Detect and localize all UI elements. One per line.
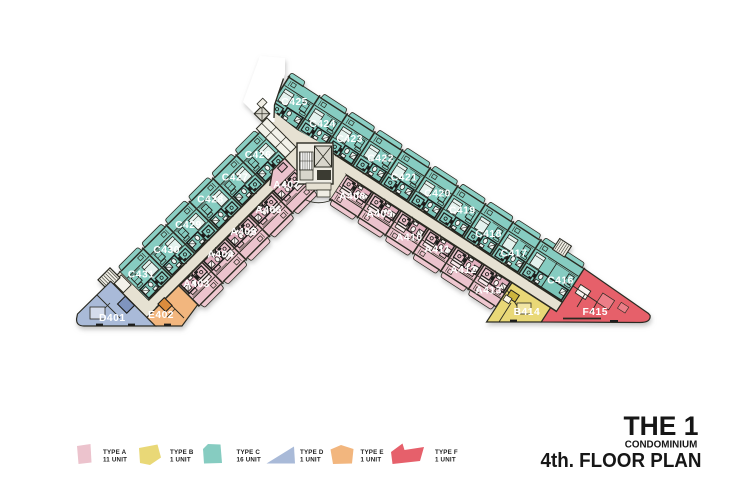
svg-text:C426: C426 bbox=[245, 150, 272, 161]
svg-text:C429: C429 bbox=[175, 220, 202, 231]
svg-text:11 UNIT: 11 UNIT bbox=[103, 457, 127, 464]
svg-text:TYPE E: TYPE E bbox=[361, 449, 384, 456]
svg-text:C427: C427 bbox=[222, 173, 249, 184]
svg-text:TYPE A: TYPE A bbox=[103, 449, 127, 456]
svg-text:C424: C424 bbox=[309, 119, 336, 130]
svg-text:A410: A410 bbox=[396, 233, 423, 244]
svg-text:D401: D401 bbox=[99, 313, 126, 324]
svg-text:TYPE B: TYPE B bbox=[170, 449, 194, 456]
svg-text:C430: C430 bbox=[153, 245, 180, 256]
svg-text:C423: C423 bbox=[336, 134, 363, 145]
svg-text:1 UNIT: 1 UNIT bbox=[300, 457, 321, 464]
svg-text:A413: A413 bbox=[475, 286, 502, 297]
svg-text:A406: A406 bbox=[255, 205, 282, 216]
svg-text:C421: C421 bbox=[391, 172, 418, 183]
svg-text:C425: C425 bbox=[281, 97, 308, 108]
svg-text:1 UNIT: 1 UNIT bbox=[361, 457, 382, 464]
svg-text:TYPE D: TYPE D bbox=[300, 449, 324, 456]
svg-text:A403: A403 bbox=[183, 279, 210, 290]
svg-text:B414: B414 bbox=[514, 307, 541, 318]
svg-text:A412: A412 bbox=[450, 265, 477, 276]
svg-text:A408: A408 bbox=[339, 191, 366, 202]
svg-text:C420: C420 bbox=[424, 189, 451, 200]
svg-text:A407: A407 bbox=[273, 180, 300, 191]
svg-text:THE 1: THE 1 bbox=[624, 411, 699, 441]
svg-text:C422: C422 bbox=[367, 154, 394, 165]
svg-text:C428: C428 bbox=[197, 195, 224, 206]
svg-text:C417: C417 bbox=[501, 248, 528, 259]
svg-text:F415: F415 bbox=[582, 307, 607, 318]
svg-text:C418: C418 bbox=[475, 229, 502, 240]
svg-text:1 UNIT: 1 UNIT bbox=[435, 457, 456, 464]
svg-text:A409: A409 bbox=[366, 209, 393, 220]
svg-text:TYPE F: TYPE F bbox=[435, 449, 458, 456]
svg-text:1 UNIT: 1 UNIT bbox=[170, 457, 191, 464]
svg-text:C416: C416 bbox=[547, 276, 574, 287]
svg-text:E402: E402 bbox=[148, 310, 174, 321]
svg-text:C431: C431 bbox=[128, 270, 155, 281]
svg-text:4th. FLOOR PLAN: 4th. FLOOR PLAN bbox=[541, 449, 702, 472]
svg-text:A404: A404 bbox=[207, 249, 234, 260]
svg-text:A411: A411 bbox=[424, 245, 450, 256]
svg-text:TYPE C: TYPE C bbox=[237, 449, 261, 456]
svg-text:16 UNIT: 16 UNIT bbox=[237, 457, 261, 464]
svg-text:C419: C419 bbox=[449, 206, 476, 217]
svg-text:A405: A405 bbox=[230, 227, 257, 238]
